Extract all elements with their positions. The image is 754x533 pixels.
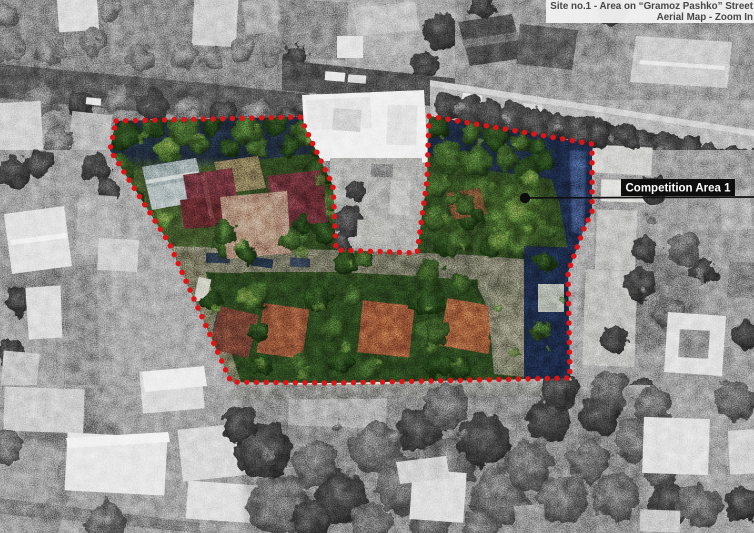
svg-text:Site no.1 - Area on “Gramoz Pa: Site no.1 - Area on “Gramoz Pashko” Stre… xyxy=(550,1,753,12)
svg-text:Aerial Map - Zoom In: Aerial Map - Zoom In xyxy=(657,12,753,23)
svg-text:Competition Area 1: Competition Area 1 xyxy=(625,183,731,195)
